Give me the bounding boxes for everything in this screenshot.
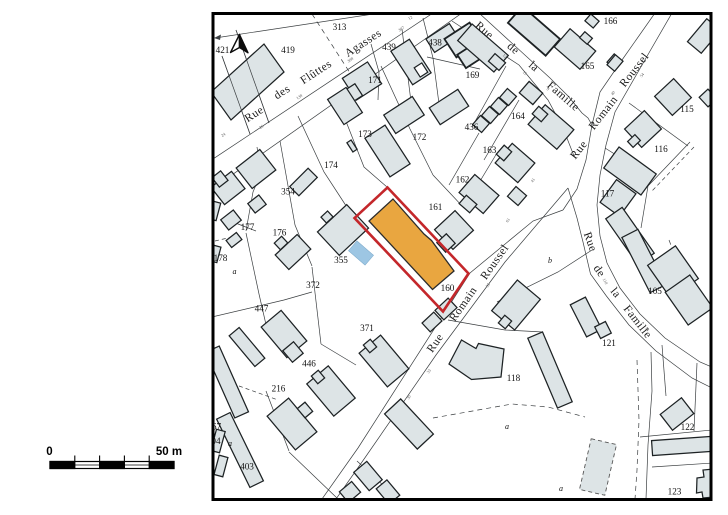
- svg-text:313: 313: [333, 22, 347, 32]
- svg-text:166: 166: [604, 16, 618, 26]
- svg-text:0: 0: [46, 446, 52, 458]
- svg-text:438: 438: [428, 38, 442, 48]
- svg-text:160: 160: [441, 283, 455, 293]
- svg-text:161: 161: [429, 202, 443, 212]
- svg-text:b: b: [548, 256, 552, 265]
- svg-text:447: 447: [255, 304, 269, 314]
- svg-text:118: 118: [507, 373, 521, 383]
- svg-text:403: 403: [240, 462, 254, 472]
- svg-text:355: 355: [334, 255, 348, 265]
- svg-text:174: 174: [324, 160, 338, 170]
- svg-text:436: 436: [465, 122, 479, 132]
- svg-text:177: 177: [241, 222, 255, 232]
- svg-text:371: 371: [360, 323, 374, 333]
- svg-text:122: 122: [681, 422, 695, 432]
- svg-text:164: 164: [511, 111, 525, 121]
- svg-text:421: 421: [216, 45, 230, 55]
- svg-text:372: 372: [306, 280, 320, 290]
- svg-text:178: 178: [214, 253, 228, 263]
- svg-text:123: 123: [668, 487, 682, 497]
- svg-text:a: a: [505, 422, 509, 431]
- svg-text:173: 173: [358, 129, 372, 139]
- svg-text:446: 446: [302, 359, 316, 369]
- svg-text:171: 171: [368, 75, 382, 85]
- svg-text:439: 439: [382, 42, 396, 52]
- svg-text:172: 172: [413, 132, 427, 142]
- svg-text:a: a: [233, 267, 237, 276]
- svg-text:162: 162: [456, 175, 470, 185]
- svg-text:169: 169: [466, 70, 480, 80]
- svg-text:354: 354: [281, 187, 295, 197]
- svg-text:176: 176: [273, 228, 287, 238]
- svg-text:216: 216: [272, 384, 286, 394]
- svg-text:a: a: [228, 439, 232, 448]
- svg-text:a: a: [559, 484, 563, 493]
- svg-text:50 m: 50 m: [156, 446, 182, 458]
- svg-text:116: 116: [654, 144, 668, 154]
- svg-text:419: 419: [281, 45, 295, 55]
- svg-text:117: 117: [601, 189, 615, 199]
- svg-text:121: 121: [602, 338, 616, 348]
- svg-text:165: 165: [581, 61, 595, 71]
- svg-text:163: 163: [483, 145, 497, 155]
- svg-text:115: 115: [680, 104, 694, 114]
- svg-text:105: 105: [648, 286, 662, 296]
